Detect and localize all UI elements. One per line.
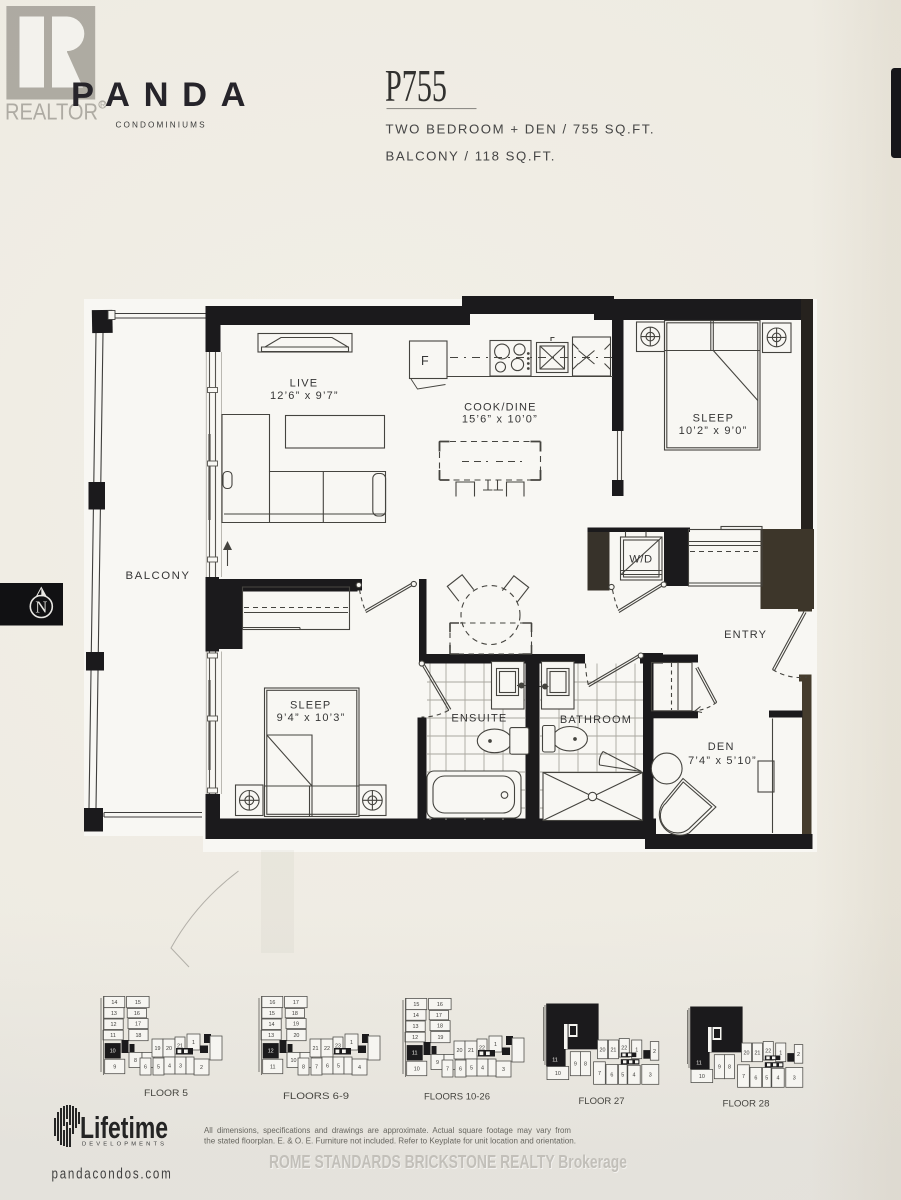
svg-text:DEVELOPMENTS: DEVELOPMENTS (82, 1142, 166, 1148)
svg-text:7: 7 (446, 1066, 449, 1072)
svg-text:11: 11 (696, 1061, 702, 1067)
svg-text:10: 10 (291, 1058, 297, 1064)
svg-text:4: 4 (358, 1065, 361, 1071)
svg-text:8: 8 (584, 1062, 587, 1068)
svg-text:P755: P755 (385, 61, 447, 111)
svg-text:4: 4 (633, 1073, 636, 1079)
svg-text:FLOOR 5: FLOOR 5 (144, 1088, 188, 1098)
svg-text:5: 5 (470, 1065, 473, 1071)
svg-text:All dimensions, specifications: All dimensions, specifications and drawi… (204, 1126, 571, 1135)
svg-text:9: 9 (113, 1064, 116, 1070)
svg-text:Lifetime: Lifetime (80, 1110, 168, 1145)
svg-text:18: 18 (135, 1033, 141, 1039)
svg-text:9: 9 (574, 1062, 577, 1068)
svg-text:FLOOR 28: FLOOR 28 (723, 1099, 770, 1109)
svg-text:15: 15 (135, 1000, 141, 1006)
svg-text:5: 5 (157, 1064, 160, 1070)
svg-text:14: 14 (269, 1022, 275, 1028)
svg-text:15: 15 (413, 1002, 419, 1008)
svg-text:9’4” x 10’3”: 9’4” x 10’3” (277, 712, 346, 724)
svg-text:18: 18 (292, 1011, 298, 1017)
svg-text:FLOOR 27: FLOOR 27 (579, 1096, 625, 1106)
svg-text:21: 21 (754, 1050, 760, 1056)
svg-text:7: 7 (315, 1064, 318, 1070)
svg-text:6: 6 (326, 1063, 329, 1069)
svg-text:6: 6 (754, 1075, 757, 1081)
svg-text:22: 22 (324, 1046, 330, 1052)
svg-text:22: 22 (765, 1049, 771, 1055)
svg-text:10’2” x 9’0”: 10’2” x 9’0” (679, 425, 748, 437)
svg-text:6: 6 (144, 1064, 147, 1070)
svg-text:6: 6 (459, 1066, 462, 1072)
svg-text:pandacondos.com: pandacondos.com (52, 1167, 173, 1183)
svg-text:FLOORS 6-9: FLOORS 6-9 (283, 1091, 349, 1101)
svg-text:4: 4 (168, 1063, 171, 1069)
svg-text:3: 3 (793, 1075, 796, 1081)
svg-text:8: 8 (728, 1065, 731, 1071)
svg-text:10: 10 (110, 1049, 116, 1055)
svg-text:13: 13 (413, 1024, 419, 1030)
svg-text:1: 1 (192, 1040, 195, 1046)
svg-text:CONDOMINIUMS: CONDOMINIUMS (116, 121, 207, 130)
svg-text:16: 16 (269, 1000, 275, 1006)
svg-text:1: 1 (635, 1047, 638, 1053)
svg-text:4: 4 (777, 1076, 780, 1082)
svg-text:5: 5 (337, 1063, 340, 1069)
svg-text:13: 13 (268, 1033, 274, 1039)
svg-text:2: 2 (797, 1052, 800, 1058)
svg-text:21: 21 (468, 1048, 474, 1054)
svg-text:11: 11 (412, 1051, 418, 1057)
svg-text:18: 18 (437, 1024, 443, 1030)
svg-text:19: 19 (437, 1035, 443, 1041)
svg-text:DEN: DEN (708, 741, 735, 753)
svg-text:ENTRY: ENTRY (724, 629, 767, 641)
svg-text:12’6” x 9’7”: 12’6” x 9’7” (270, 390, 339, 402)
svg-text:7’4” x 5’10”: 7’4” x 5’10” (688, 755, 757, 767)
svg-text:15’6” x 10’0”: 15’6” x 10’0” (462, 414, 538, 426)
svg-text:15: 15 (269, 1011, 275, 1017)
svg-text:11: 11 (110, 1033, 116, 1039)
svg-text:10: 10 (414, 1066, 420, 1072)
svg-text:14: 14 (413, 1013, 419, 1019)
svg-text:7: 7 (742, 1074, 745, 1080)
svg-text:11: 11 (552, 1058, 558, 1064)
svg-text:SLEEP: SLEEP (290, 700, 331, 712)
svg-text:10: 10 (555, 1071, 561, 1077)
svg-text:6: 6 (610, 1072, 613, 1078)
svg-text:19: 19 (155, 1046, 161, 1052)
svg-text:COOK/DINE: COOK/DINE (464, 402, 537, 414)
svg-text:16: 16 (134, 1011, 140, 1017)
svg-text:20: 20 (457, 1048, 463, 1054)
svg-text:16: 16 (437, 1002, 443, 1008)
svg-text:the stated floorplan. E. & O.: the stated floorplan. E. & O. E. Furnitu… (204, 1137, 576, 1146)
svg-text:13: 13 (111, 1011, 117, 1017)
svg-text:20: 20 (600, 1047, 606, 1053)
svg-text:12: 12 (111, 1022, 117, 1028)
svg-text:22: 22 (621, 1046, 627, 1052)
svg-text:2: 2 (653, 1049, 656, 1055)
svg-text:1: 1 (494, 1042, 497, 1048)
svg-text:17: 17 (135, 1022, 141, 1028)
svg-text:19: 19 (293, 1022, 299, 1028)
svg-text:3: 3 (649, 1072, 652, 1078)
svg-text:17: 17 (436, 1013, 442, 1019)
svg-text:BALCONY / 118 SQ.FT.: BALCONY / 118 SQ.FT. (386, 149, 557, 164)
svg-text:14: 14 (111, 1000, 117, 1006)
svg-text:1: 1 (779, 1050, 782, 1056)
svg-text:TWO BEDROOM + DEN / 755 SQ.FT.: TWO BEDROOM + DEN / 755 SQ.FT. (386, 122, 656, 137)
svg-text:8: 8 (302, 1064, 305, 1070)
svg-text:7: 7 (598, 1071, 601, 1077)
svg-text:17: 17 (293, 1000, 299, 1006)
svg-text:20: 20 (166, 1046, 172, 1052)
svg-text:BATHROOM: BATHROOM (560, 714, 632, 726)
svg-text:3: 3 (502, 1067, 505, 1073)
svg-text:9: 9 (436, 1060, 439, 1066)
svg-text:2: 2 (200, 1065, 203, 1071)
svg-text:N: N (35, 598, 47, 617)
svg-text:20: 20 (744, 1050, 750, 1056)
svg-text:20: 20 (293, 1033, 299, 1039)
svg-text:LIVE: LIVE (290, 378, 319, 390)
svg-text:5: 5 (765, 1075, 768, 1081)
svg-text:1: 1 (350, 1040, 353, 1046)
svg-text:ROME STANDARDS BRICKSTONE REAL: ROME STANDARDS BRICKSTONE REALTY Brokera… (269, 1151, 627, 1172)
svg-text:8: 8 (134, 1058, 137, 1064)
svg-text:10: 10 (699, 1074, 705, 1080)
svg-text:F: F (421, 354, 429, 368)
svg-text:FLOORS 10-26: FLOORS 10-26 (424, 1092, 490, 1102)
svg-text:ENSUITE: ENSUITE (451, 713, 507, 725)
svg-text:5: 5 (621, 1072, 624, 1078)
svg-text:W/D: W/D (629, 554, 652, 566)
svg-text:21: 21 (313, 1046, 319, 1052)
svg-text:BALCONY: BALCONY (126, 570, 191, 582)
svg-text:PANDA: PANDA (71, 76, 259, 114)
svg-text:21: 21 (610, 1047, 616, 1053)
svg-text:3: 3 (179, 1063, 182, 1069)
svg-text:SLEEP: SLEEP (693, 413, 734, 425)
svg-text:12: 12 (268, 1049, 274, 1055)
svg-text:11: 11 (270, 1064, 276, 1070)
svg-text:12: 12 (412, 1035, 418, 1041)
svg-text:4: 4 (481, 1065, 484, 1071)
svg-text:9: 9 (718, 1065, 721, 1071)
